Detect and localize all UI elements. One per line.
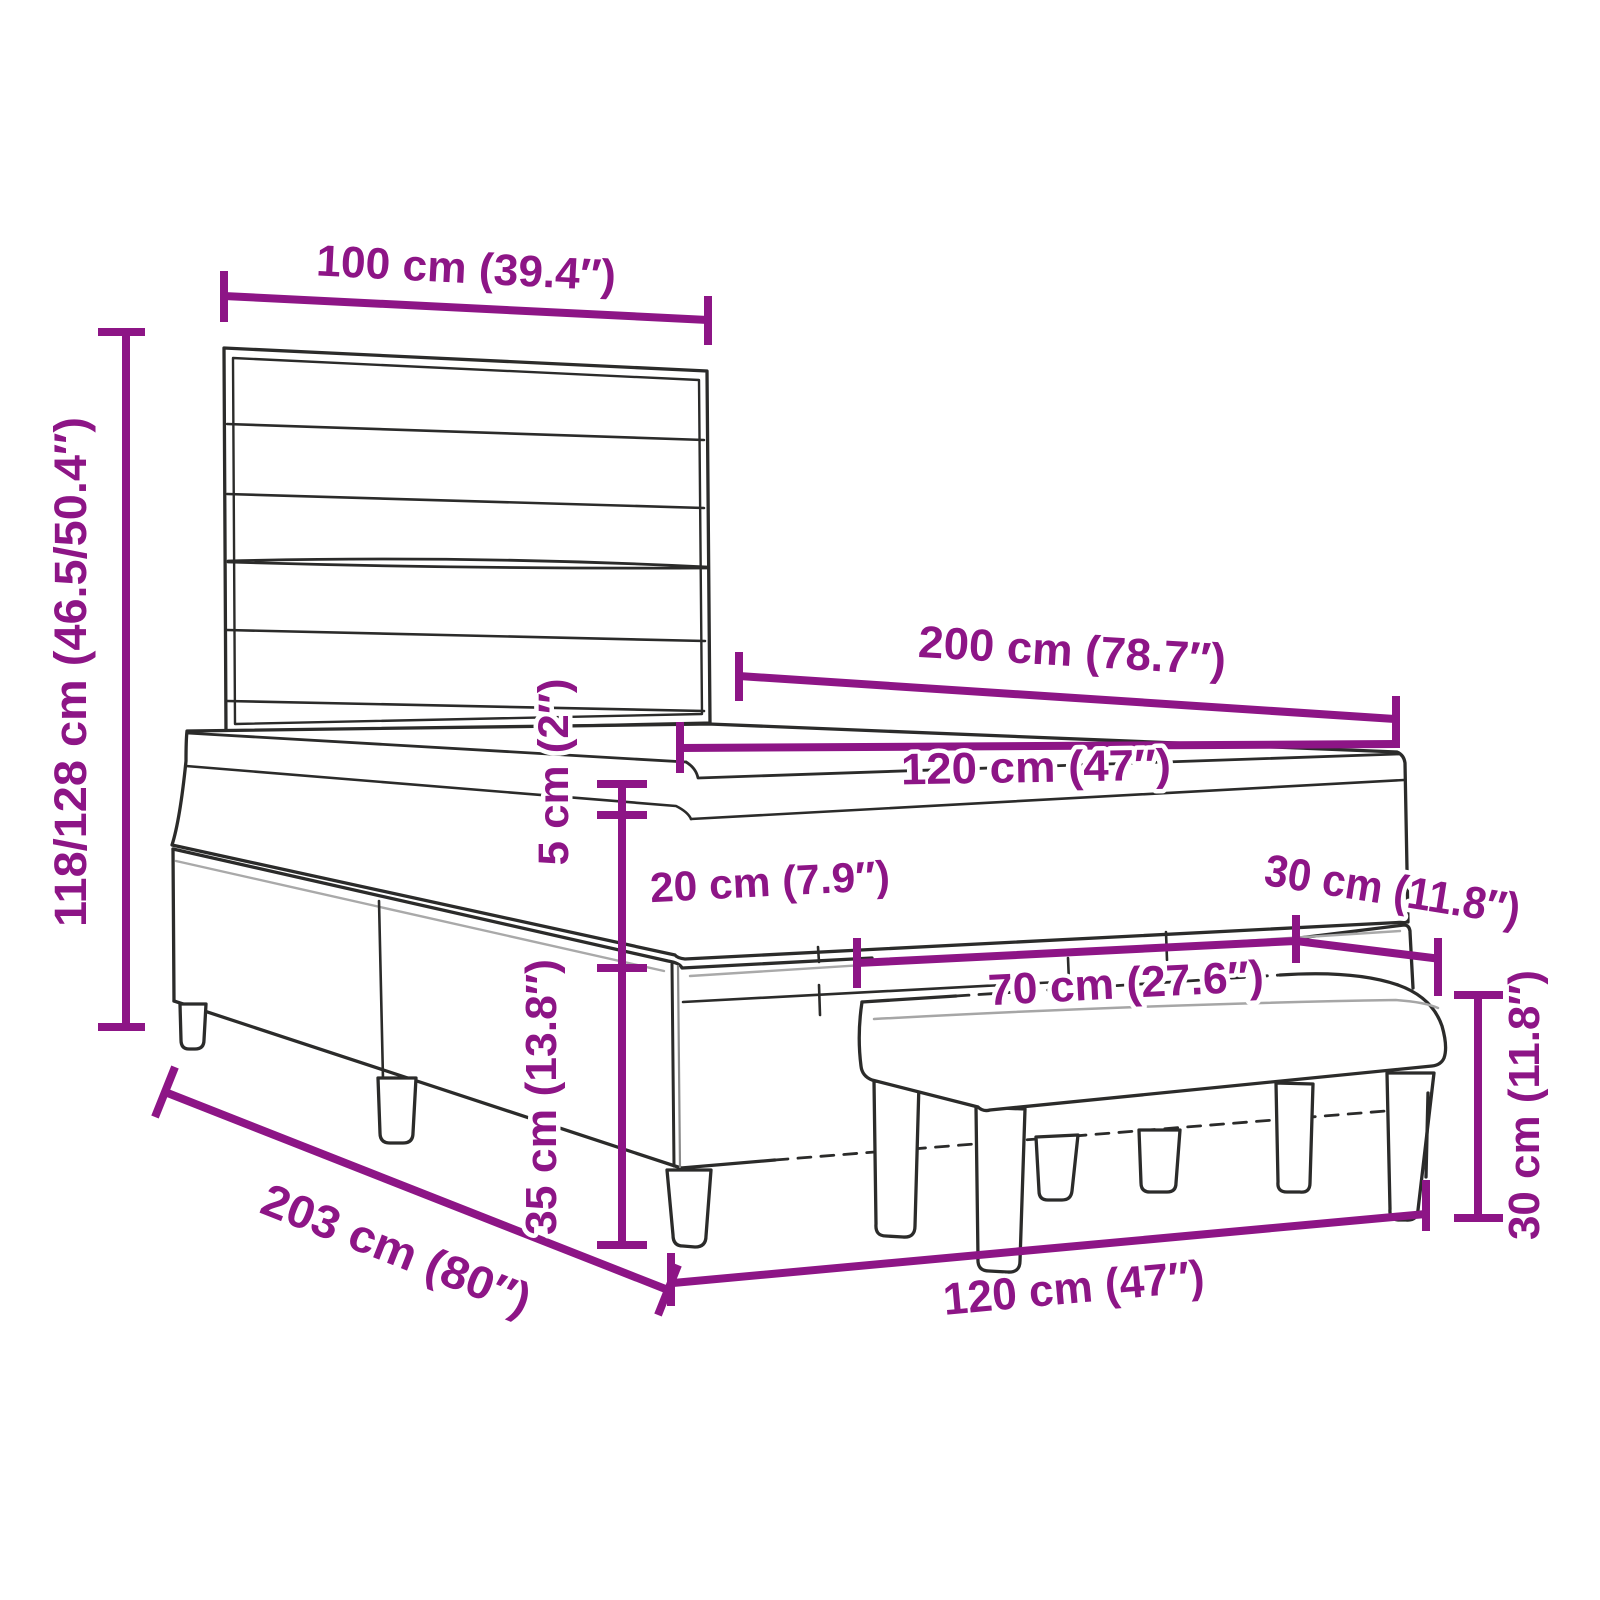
svg-text:118/128 cm (46.5/50.4″): 118/128 cm (46.5/50.4″) bbox=[45, 417, 96, 927]
svg-text:5 cm (2″): 5 cm (2″) bbox=[530, 679, 578, 866]
svg-text:120 cm (47″): 120 cm (47″) bbox=[901, 741, 1172, 795]
svg-text:35 cm (13.8″): 35 cm (13.8″) bbox=[517, 959, 566, 1235]
svg-text:30 cm (11.8″): 30 cm (11.8″) bbox=[1500, 970, 1549, 1240]
